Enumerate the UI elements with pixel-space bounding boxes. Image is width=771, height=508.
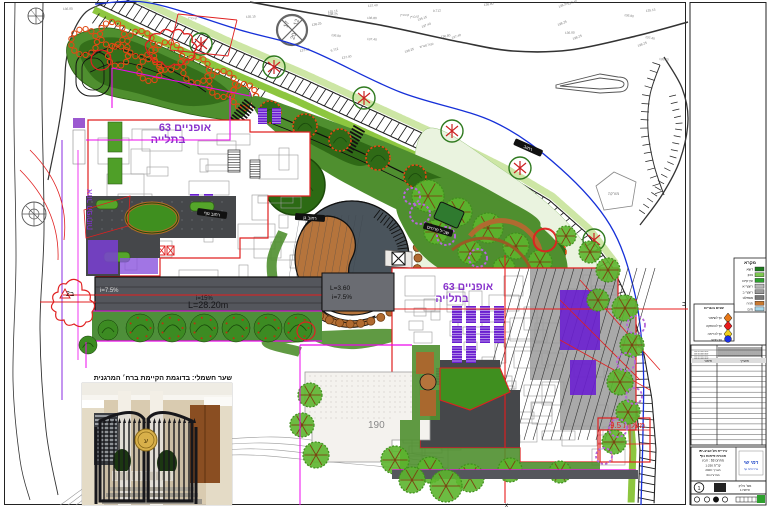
svg-text:אספלט: אספלט (743, 296, 754, 300)
svg-text:i=7.5%: i=7.5% (332, 294, 352, 301)
svg-text:קו בניין: קו בניין (400, 13, 409, 17)
svg-text:מזרקה: מזרקה (608, 191, 619, 196)
svg-text:135.15: 135.15 (246, 14, 256, 19)
svg-text:רחוב גן: רחוב גן (303, 215, 317, 221)
svg-text:מהדורה 04: מהדורה 04 (706, 473, 719, 477)
svg-text:135.15: 135.15 (659, 57, 669, 62)
svg-text:אזור הפיתוח: אזור הפיתוח (85, 189, 94, 230)
svg-text:63 אופניים: 63 אופניים (159, 122, 212, 134)
svg-text:190: 190 (368, 420, 385, 431)
svg-text:138.25: 138.25 (328, 12, 338, 16)
svg-text:ריצוף א: ריצוף א (742, 285, 753, 289)
svg-text:עיריית תל אביב-יפו: עיריית תל אביב-יפו (699, 449, 728, 453)
svg-text:עץ קיים: עץ קיים (742, 279, 753, 283)
svg-text:ע: ע (144, 438, 148, 445)
svg-text:תאריך: 2020: תאריך: 2020 (705, 468, 720, 472)
svg-text:תכנית פיתוח נוף: תכנית פיתוח נוף (700, 454, 727, 458)
svg-text:עץ חדש: עץ חדש (711, 338, 722, 342)
svg-text:136.80: 136.80 (367, 16, 377, 20)
svg-text:קנ״מ 1:250: קנ״מ 1:250 (705, 463, 720, 467)
svg-text:עץ להעתקה: עץ להעתקה (706, 324, 722, 328)
svg-text:136.80: 136.80 (63, 7, 73, 11)
svg-text:חניה: חניה (746, 302, 753, 306)
svg-text:x: x (505, 503, 508, 508)
svg-text:ב: ב (682, 301, 686, 308)
svg-text:אדריכלות נוף: אדריכלות נוף (744, 467, 759, 471)
svg-text:ריצוף ב: ריצוף ב (742, 290, 753, 294)
svg-text:גינון: גינון (748, 273, 754, 277)
svg-text:i=7.5%: i=7.5% (100, 288, 119, 294)
svg-text:136.80: 136.80 (565, 30, 575, 35)
svg-text:מקרא: מקרא (744, 260, 756, 265)
svg-text:שער חשמלי: בדוגמת הקיימת ברח׳: שער חשמלי: בדוגמת הקיימת ברח׳ המרגנית (94, 373, 233, 382)
svg-text:דשא: דשא (747, 268, 754, 272)
svg-text:9.712: 9.712 (433, 8, 441, 13)
svg-text:מים: מים (748, 307, 754, 311)
svg-text:גרסה מהדורה שינוי: גרסה מהדורה שינוי (694, 358, 708, 360)
svg-text:עץ לשימור: עץ לשימור (708, 316, 722, 320)
svg-text:137.40: 137.40 (367, 37, 377, 42)
svg-text:תאריך: תאריך (740, 359, 750, 363)
svg-text:i=15%: i=15% (196, 296, 214, 302)
svg-text:1: 1 (697, 486, 700, 492)
svg-text:עצים בוגרים: עצים בוגרים (704, 306, 725, 310)
svg-text:63 אופניים: 63 אופניים (443, 281, 493, 293)
svg-text:מתחם 63 : רובע: מתחם 63 : רובע (702, 459, 724, 463)
svg-text:ב2: ב2 (66, 291, 74, 298)
svg-text:בתלייה: בתלייה (435, 293, 469, 305)
svg-text:רמי שי: רמי שי (744, 460, 759, 466)
svg-text:עץ לכריתה: עץ לכריתה (708, 332, 722, 336)
svg-text:L=3.60: L=3.60 (330, 285, 350, 292)
svg-text:פיתוח 1: פיתוח 1 (740, 488, 750, 492)
